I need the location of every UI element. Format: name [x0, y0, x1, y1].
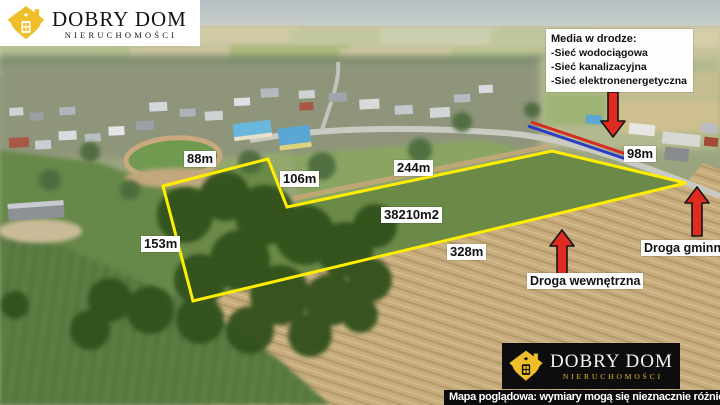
- dim-label-153m: 153m: [141, 236, 180, 252]
- road-label-gminna: Droga gminna: [641, 240, 720, 256]
- listing-photo: Media w drodze: -Sieć wodociągowa -Sieć …: [0, 0, 720, 405]
- gravel-yard: [0, 219, 82, 243]
- media-info-line-power: -Sieć elektronenergetyczna: [551, 74, 687, 88]
- brand-house-icon: [507, 348, 545, 384]
- brand-subtitle: NIERUCHOMOŚCI: [563, 372, 663, 382]
- road-label-wewnetrzna: Droga wewnętrzna: [527, 273, 643, 289]
- media-info-line-water: -Sieć wodociągowa: [551, 46, 687, 60]
- disclaimer-bar: Mapa poglądowa: wymiary mogą się nieznac…: [444, 390, 720, 405]
- media-info-box: Media w drodze: -Sieć wodociągowa -Sieć …: [546, 29, 693, 92]
- dim-label-328m: 328m: [447, 244, 486, 260]
- media-info-title: Media w drodze:: [551, 32, 687, 46]
- brand-name: DOBRY DOM: [550, 352, 673, 372]
- brand-house-icon: [5, 3, 47, 43]
- dim-label-244m: 244m: [394, 160, 433, 176]
- media-info-line-sewer: -Sieć kanalizacyjna: [551, 60, 687, 74]
- dim-label-98m: 98m: [624, 146, 656, 162]
- area-label: 38210m2: [381, 207, 442, 223]
- brand-subtitle: NIERUCHOMOŚCI: [65, 30, 177, 40]
- brand-logo-top-left: DOBRY DOM NIERUCHOMOŚCI: [0, 0, 200, 46]
- brand-logo-bottom-right: DOBRY DOM NIERUCHOMOŚCI: [502, 343, 680, 389]
- dim-label-106m: 106m: [280, 171, 319, 187]
- disclaimer-text: Mapa poglądowa: wymiary mogą się nieznac…: [449, 391, 720, 403]
- brand-name: DOBRY DOM: [52, 8, 187, 30]
- dim-label-88m: 88m: [184, 151, 216, 167]
